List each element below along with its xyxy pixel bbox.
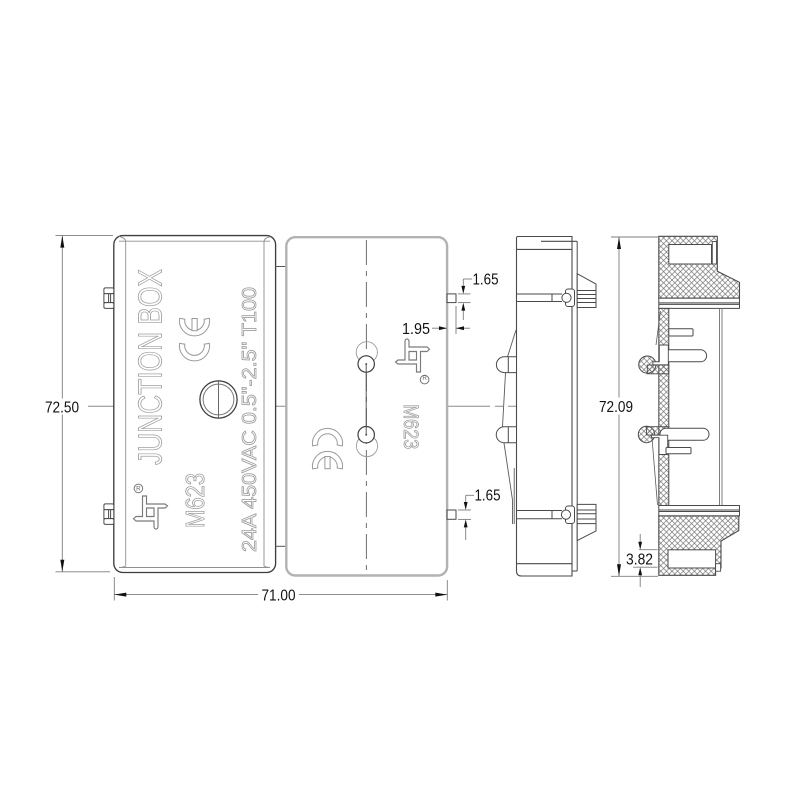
svg-text:M623: M623: [180, 473, 210, 528]
svg-text:72.50: 72.50: [45, 399, 79, 416]
svg-text:1.95: 1.95: [402, 321, 430, 338]
svg-text:R: R: [136, 486, 141, 493]
svg-text:72.09: 72.09: [599, 399, 633, 416]
svg-text:1.65: 1.65: [473, 271, 499, 288]
svg-text:1.65: 1.65: [475, 488, 501, 505]
svg-text:3.82: 3.82: [626, 551, 653, 568]
svg-text:24A 450VAC 0.5"-2.5" T100: 24A 450VAC 0.5"-2.5" T100: [238, 287, 261, 552]
svg-text:R: R: [422, 375, 427, 382]
svg-text:71.00: 71.00: [262, 587, 296, 604]
svg-text:JUNCTION BOX: JUNCTION BOX: [132, 269, 169, 465]
svg-text:M623: M623: [399, 404, 422, 449]
